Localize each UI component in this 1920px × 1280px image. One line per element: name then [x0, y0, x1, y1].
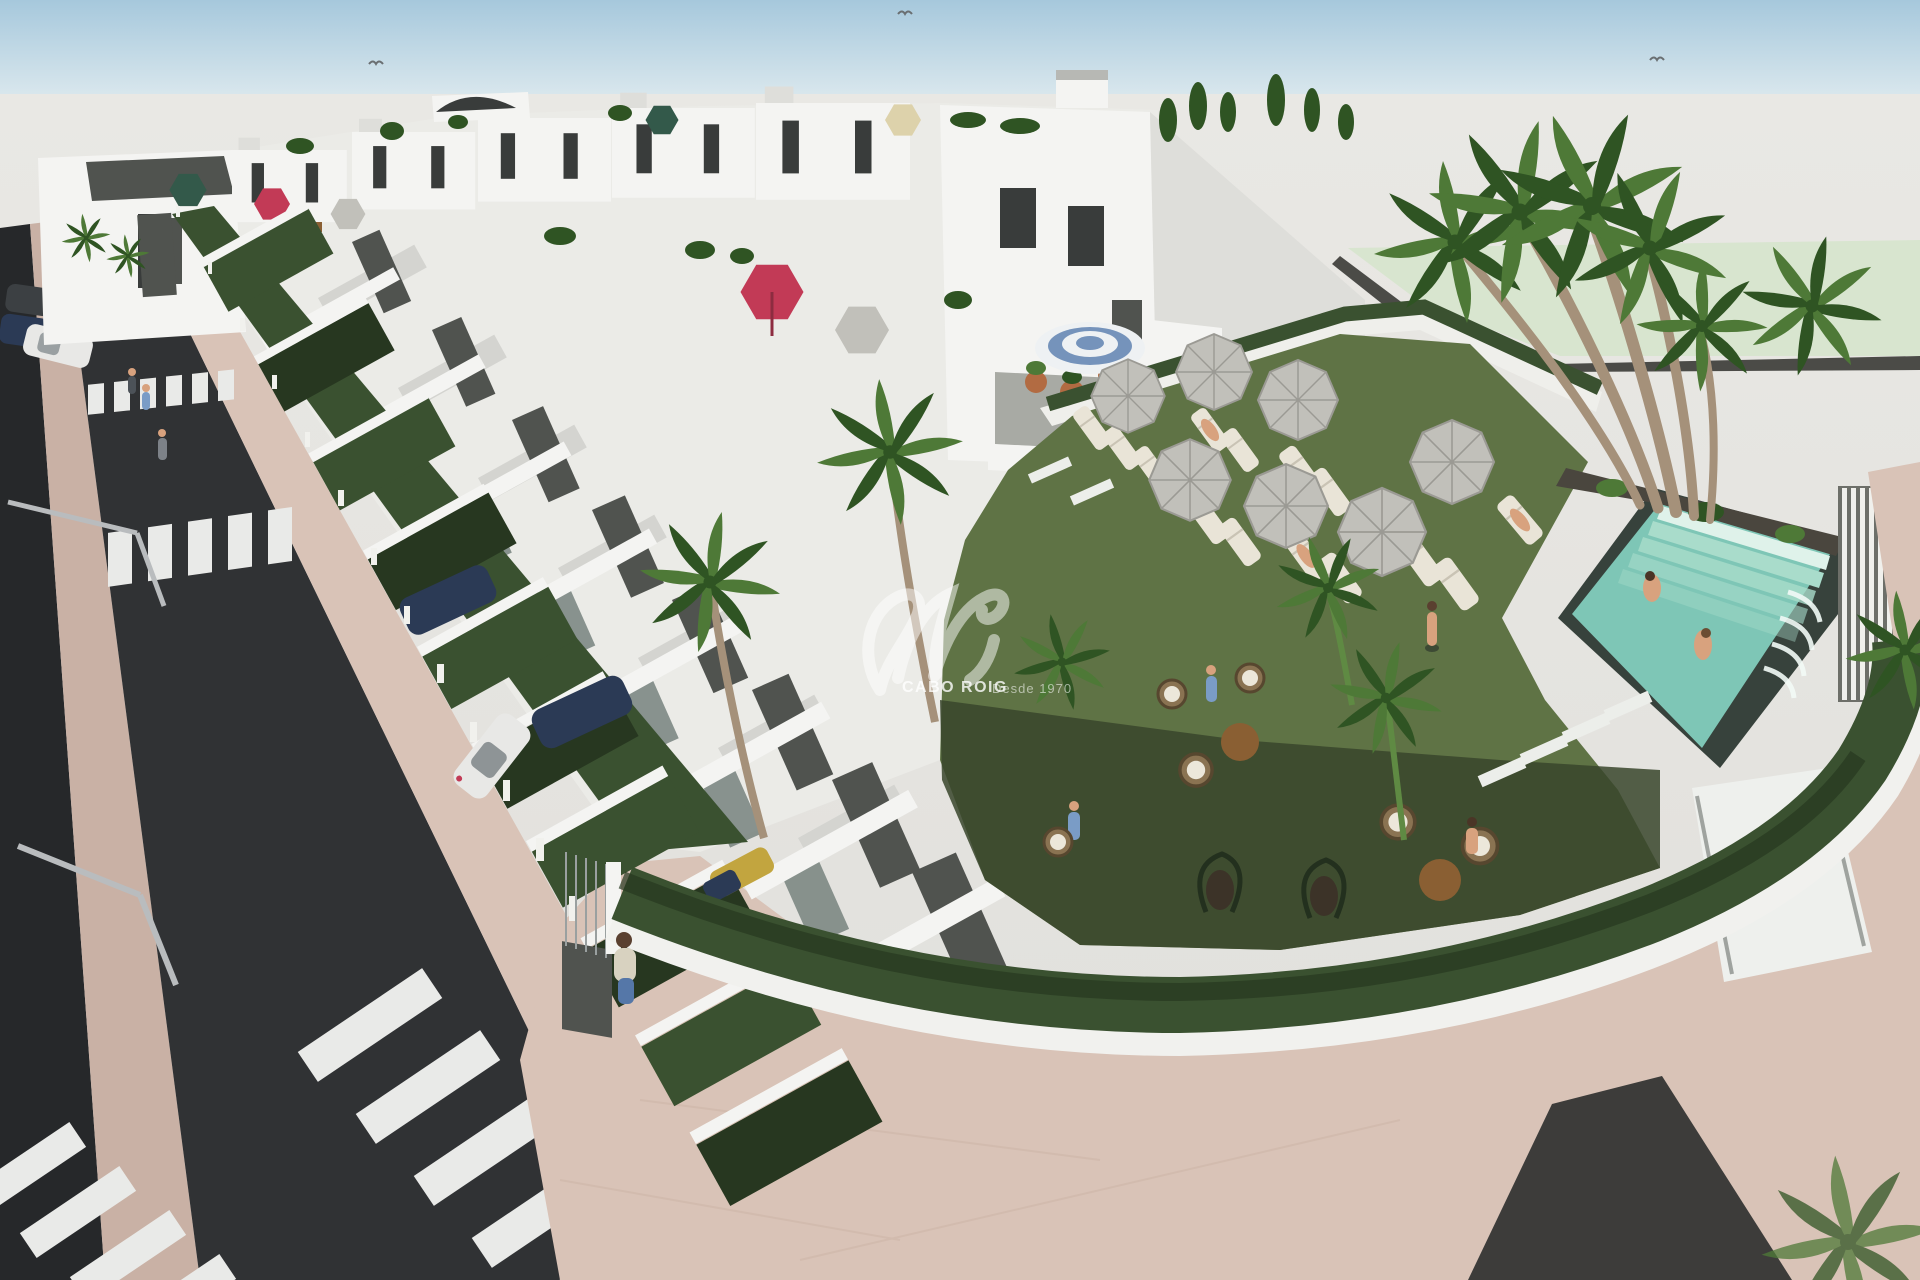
architectural-render: CABO ROIG Desde 1970 [0, 0, 1920, 1280]
render-canvas: CABO ROIG Desde 1970 [0, 0, 1920, 1280]
pedestrian [128, 368, 136, 394]
seated-person [1206, 665, 1217, 702]
rattan-table [1419, 859, 1461, 901]
seated-person [1466, 817, 1478, 854]
pedestrian [158, 429, 167, 460]
rattan-table [1221, 723, 1259, 761]
standing-person [1427, 601, 1437, 646]
watermark-tagline: Desde 1970 [992, 681, 1072, 696]
sky [0, 0, 1920, 96]
pedestrian [142, 384, 150, 410]
